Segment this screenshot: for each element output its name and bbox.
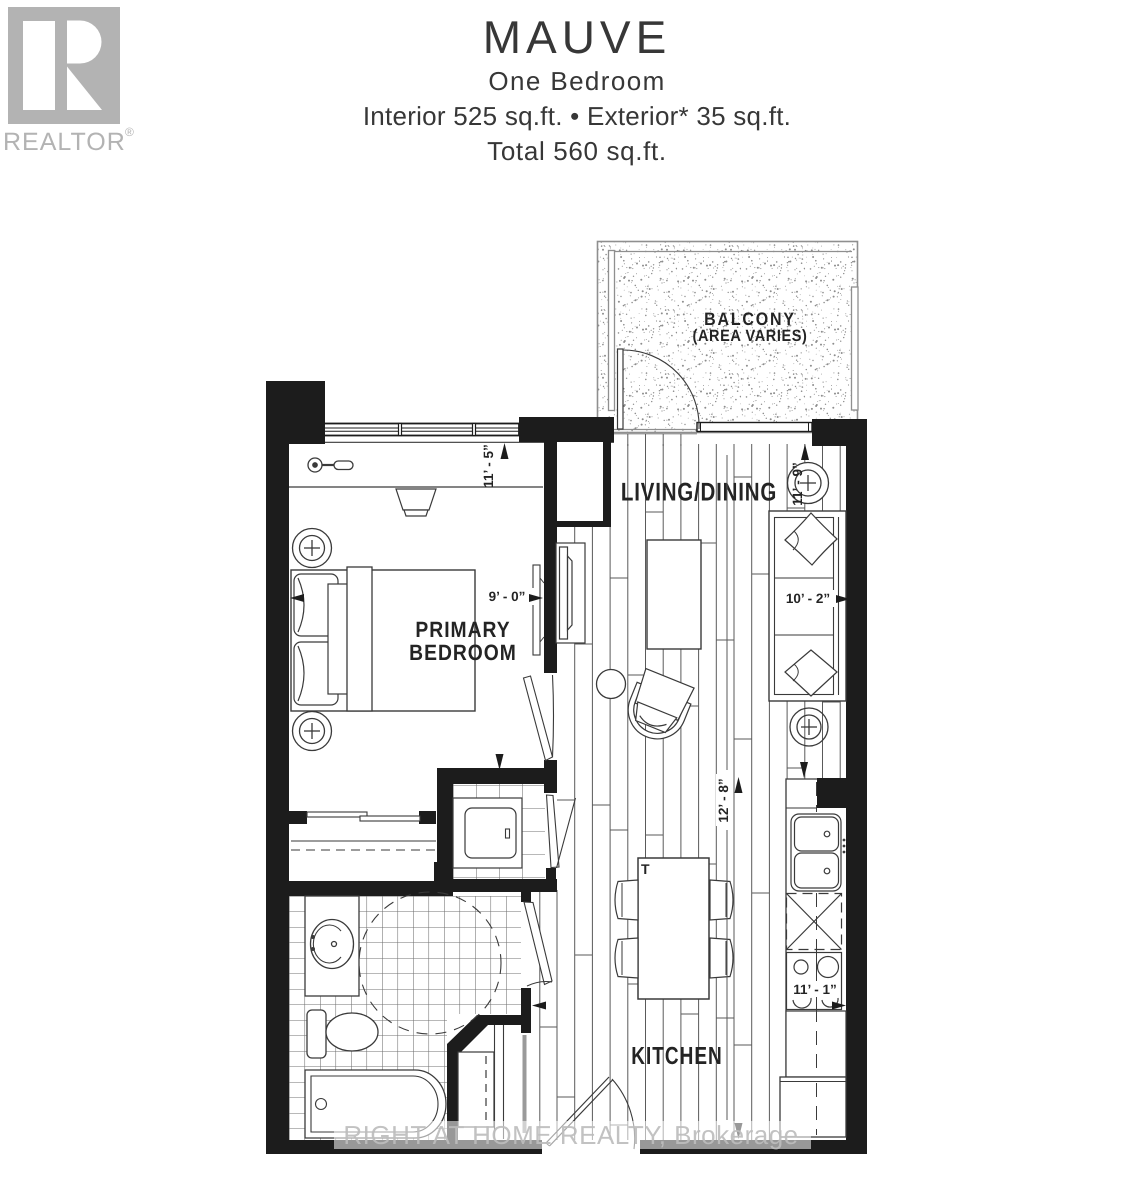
svg-text:12’ - 8”: 12’ - 8” — [716, 778, 731, 822]
svg-text:10’ - 2”: 10’ - 2” — [786, 591, 830, 606]
svg-text:9’ - 0”: 9’ - 0” — [489, 589, 526, 604]
svg-text:RIGHT AT HOME REALTY, Brokerag: RIGHT AT HOME REALTY, Brokerage — [343, 1120, 798, 1150]
svg-text:BEDROOM: BEDROOM — [409, 642, 517, 666]
svg-text:®: ® — [125, 125, 134, 139]
svg-text:Interior 525 sq.ft. • Exterior: Interior 525 sq.ft. • Exterior* 35 sq.ft… — [363, 101, 791, 131]
svg-text:REALTOR: REALTOR — [3, 128, 126, 156]
svg-text:(AREA VARIES): (AREA VARIES) — [693, 327, 808, 345]
svg-text:PRIMARY: PRIMARY — [415, 619, 510, 643]
svg-text:One Bedroom: One Bedroom — [488, 66, 665, 96]
svg-text:11’ - 1”: 11’ - 1” — [793, 982, 837, 997]
svg-text:KITCHEN: KITCHEN — [631, 1043, 722, 1070]
svg-text:MAUVE: MAUVE — [483, 11, 672, 63]
svg-text:11’ - 9”: 11’ - 9” — [790, 462, 805, 506]
svg-text:T: T — [641, 861, 650, 877]
svg-text:Total 560 sq.ft.: Total 560 sq.ft. — [487, 136, 667, 166]
svg-text:11’ - 5”: 11’ - 5” — [481, 444, 496, 488]
svg-text:LIVING/DINING: LIVING/DINING — [621, 478, 777, 507]
